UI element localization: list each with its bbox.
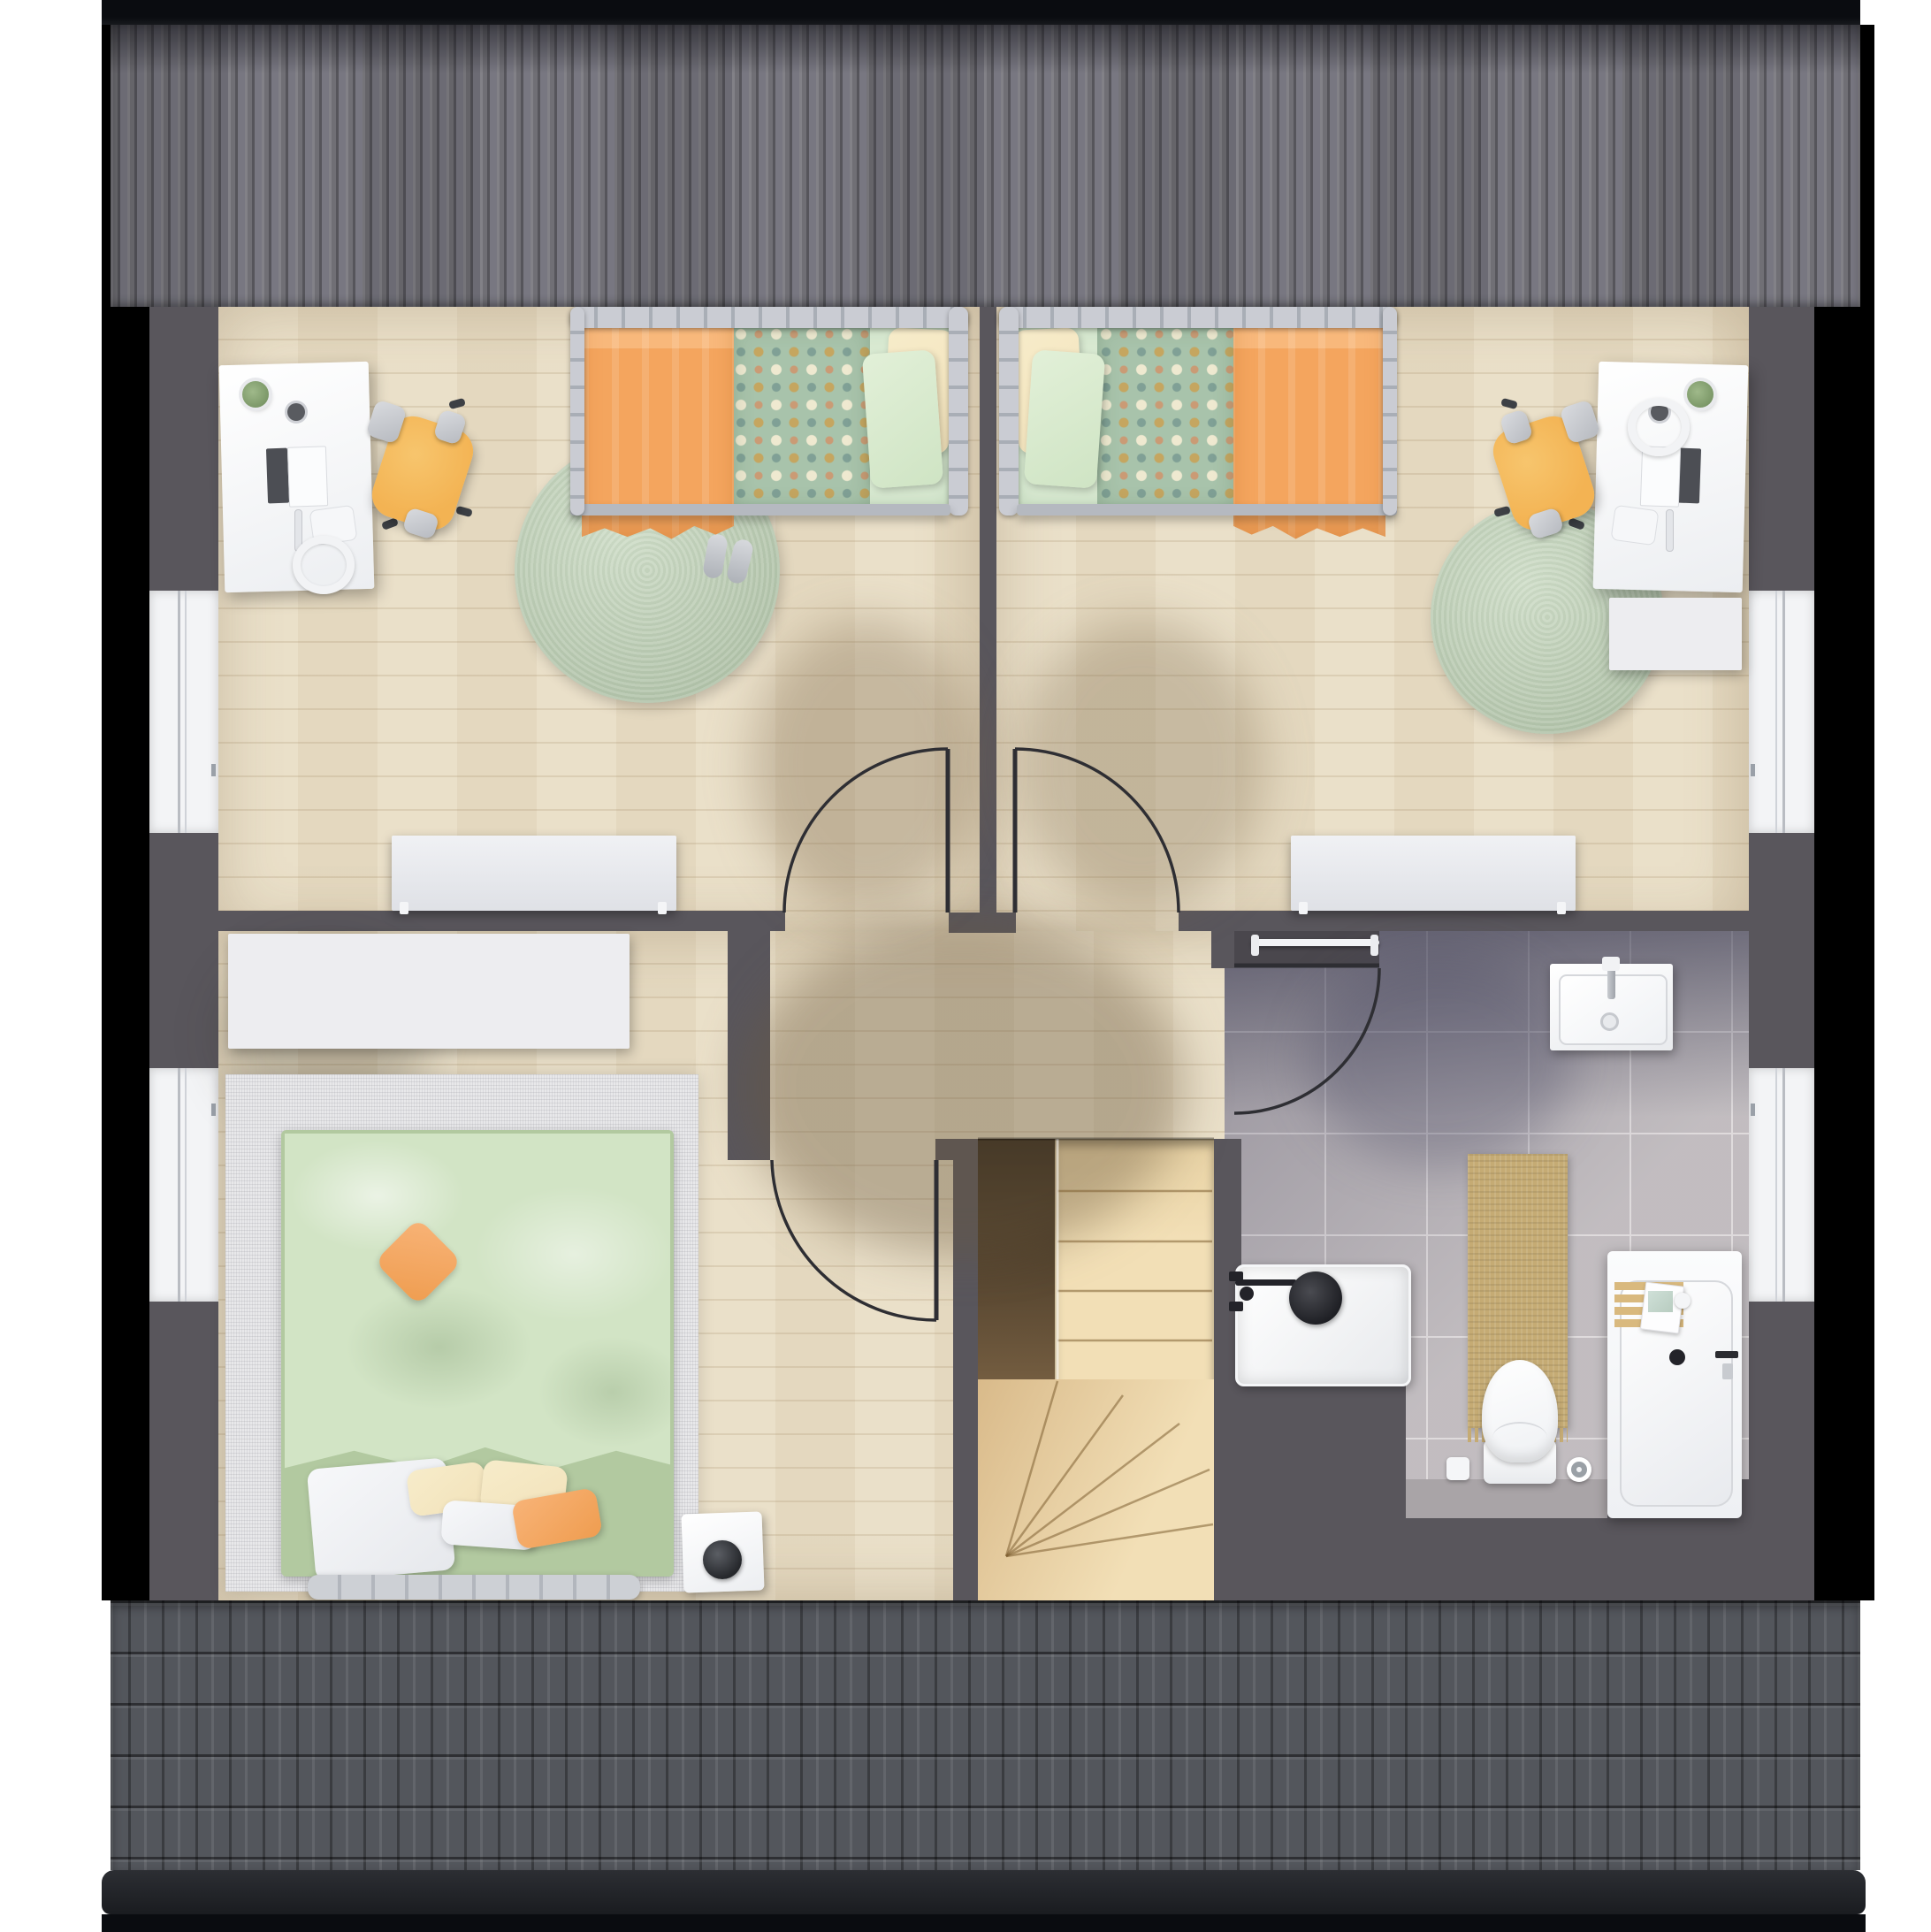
eave-shadow-bottom (102, 1870, 1866, 1914)
floor-plan-canvas (0, 0, 1931, 1932)
door-arc-bathroom (1234, 968, 1379, 1113)
door-arc-master (772, 1160, 936, 1320)
door-arc-bedroom-right (1015, 749, 1179, 913)
stair-tread-lines (1006, 1191, 1213, 1556)
roof-band-bottom (111, 1600, 1860, 1870)
door-arc-bedroom-left (784, 749, 948, 913)
ridge-bar-bottom (102, 1914, 1866, 1932)
